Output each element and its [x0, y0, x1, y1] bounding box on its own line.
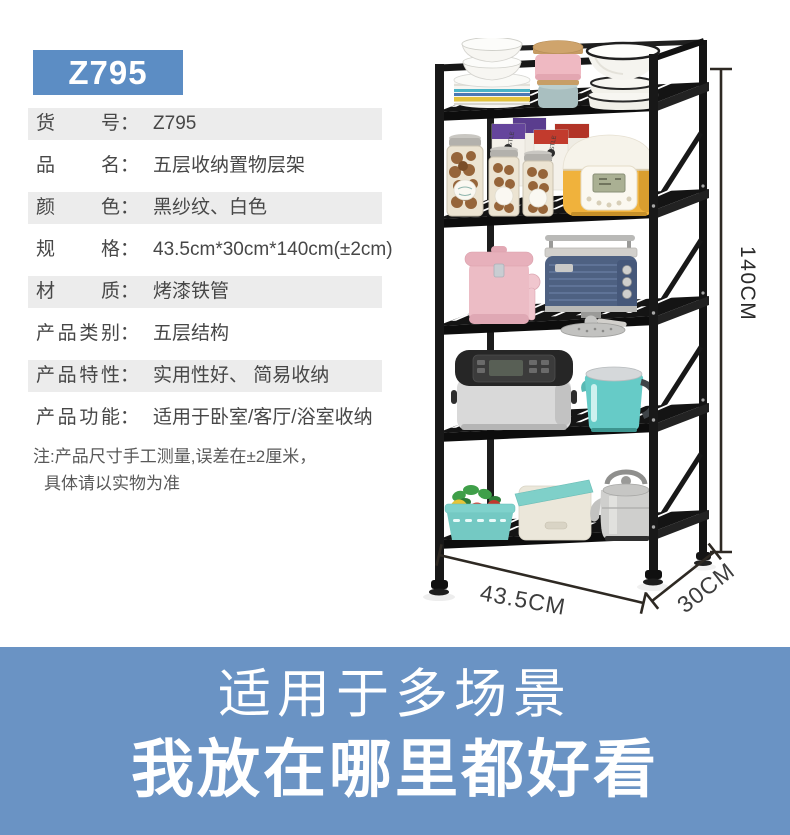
banner-subheadline: 我放在哪里都好看: [0, 733, 790, 807]
spec-colon: ：: [120, 318, 139, 350]
spec-row-size: 规格：43.5cm*30cm*140cm(±2cm): [28, 234, 382, 266]
dish-stack: [454, 38, 659, 110]
shelf-illustration: WILLIAM WHISTLE WILLIAM WHISTLE: [395, 38, 775, 623]
spec-value: 五层结构: [153, 323, 229, 344]
floor-shadows: [423, 564, 716, 602]
spec-value: Z795: [153, 113, 196, 134]
spec-row-item-no: 货号：Z795: [28, 108, 382, 140]
spec-label: 品名: [36, 150, 120, 182]
spec-value: 烤漆铁管: [153, 281, 229, 302]
spec-colon: ：: [120, 108, 139, 140]
dimension-height-label: 140CM: [736, 246, 759, 321]
banner-headline: 适用于多场景: [0, 664, 790, 726]
pink-canister: [465, 246, 540, 324]
spec-value: 适用于卧室/客厅/浴室收纳: [153, 407, 373, 428]
spec-value: 43.5cm*30cm*140cm(±2cm): [153, 239, 393, 260]
spec-colon: ：: [120, 402, 139, 434]
spec-label: 材质: [36, 276, 120, 308]
spec-label: 货号: [36, 108, 120, 140]
rice-cooker-yellow: [563, 135, 655, 216]
vegetable-basket: [445, 485, 515, 540]
measurement-note-line2: 具体请以实物为准: [33, 470, 316, 497]
spec-row-function: 产品功能：适用于卧室/客厅/浴室收纳: [28, 402, 382, 434]
dimension-width-label: 43.5CM: [478, 579, 568, 620]
spec-label: 产品功能: [36, 402, 120, 434]
bread-box: [515, 480, 593, 540]
spec-label: 颜色: [36, 192, 120, 224]
rice-cooker-black: [451, 350, 577, 430]
spec-label: 产品类别: [36, 318, 120, 350]
spec-value: 黑纱纹、白色: [153, 197, 267, 218]
spec-table: 货号：Z795 品名：五层收纳置物层架 颜色：黑纱纹、白色 规格：43.5cm*…: [28, 108, 382, 444]
product-photo: WILLIAM WHISTLE WILLIAM WHISTLE: [395, 38, 775, 623]
measurement-note: 注:产品尺寸手工测量,误差在±2厘米， 具体请以实物为准: [33, 443, 316, 497]
spec-row-feature: 产品特性：实用性好、 简易收纳: [28, 360, 382, 392]
spec-colon: ：: [120, 234, 139, 266]
spec-label: 产品特性: [36, 360, 120, 392]
spec-row-material: 材质：烤漆铁管: [28, 276, 382, 308]
spec-colon: ：: [120, 192, 139, 224]
spec-value: 实用性好、 简易收纳: [153, 365, 329, 386]
spec-row-category: 产品类别：五层结构: [28, 318, 382, 350]
spec-colon: ：: [120, 276, 139, 308]
spec-value: 五层收纳置物层架: [153, 155, 305, 176]
spec-label: 规格: [36, 234, 120, 266]
spec-colon: ：: [120, 150, 139, 182]
spec-row-product-name: 品名：五层收纳置物层架: [28, 150, 382, 182]
marketing-banner: 适用于多场景 我放在哪里都好看: [0, 647, 790, 835]
spec-colon: ：: [120, 360, 139, 392]
measurement-note-line1: 注:产品尺寸手工测量,误差在±2厘米，: [33, 443, 316, 470]
spec-row-color: 颜色：黑纱纹、白色: [28, 192, 382, 224]
product-code-badge: Z795: [33, 50, 183, 95]
